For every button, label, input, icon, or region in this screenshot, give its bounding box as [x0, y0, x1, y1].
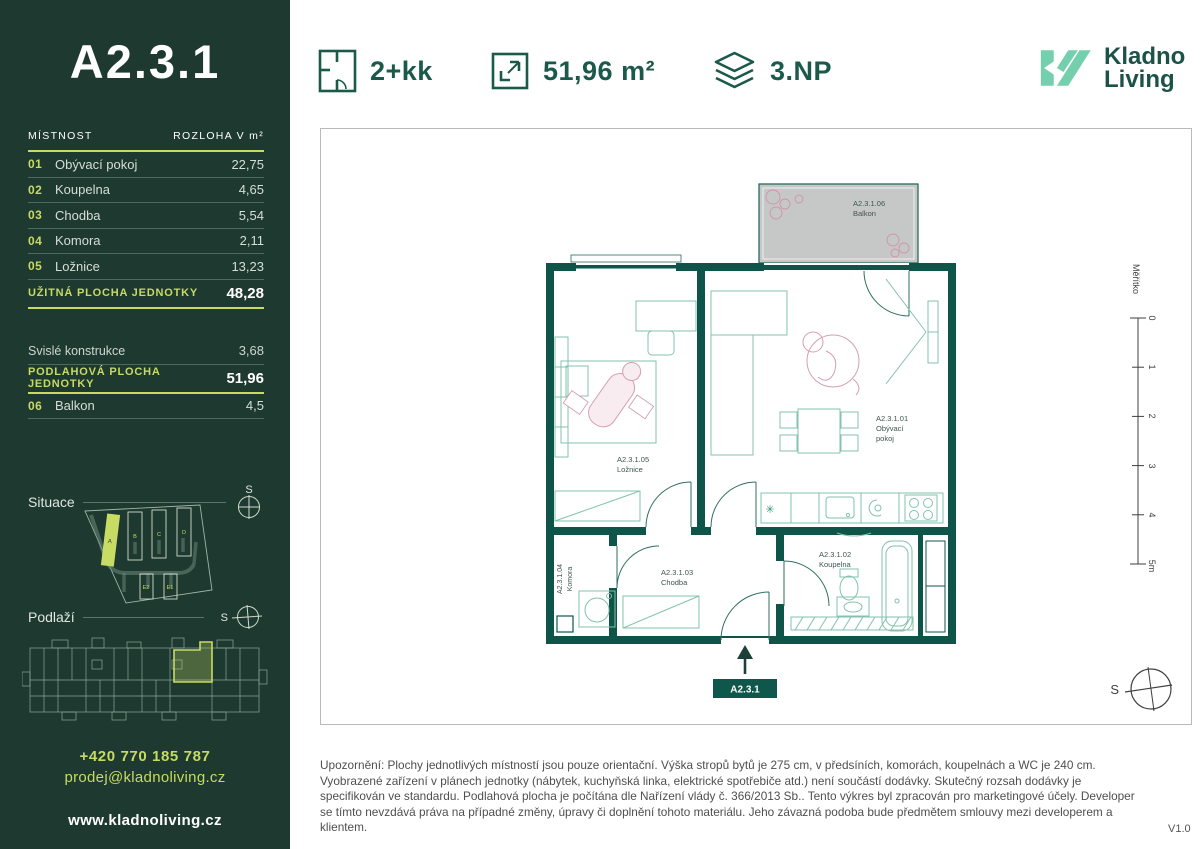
usable-area-row: UŽITNÁ PLOCHA JEDNOTKY 48,28	[28, 280, 264, 309]
brand-line1: Kladno	[1104, 45, 1185, 68]
room-number: 06	[28, 399, 55, 413]
unit-id-title: A2.3.1	[0, 34, 290, 89]
svg-text:Chodba: Chodba	[661, 578, 688, 587]
svg-text:E1: E1	[167, 585, 174, 591]
svg-text:pokoj: pokoj	[876, 434, 894, 443]
svg-text:D: D	[182, 530, 186, 536]
balcony-row: 06 Balkon 4,5	[28, 394, 264, 420]
room-area: 13,23	[231, 259, 264, 274]
area-icon	[490, 51, 530, 91]
room-name: Komora	[55, 233, 101, 248]
floorplan-canvas: Měřítko 0 1 2 3 4 5m S A2.3.1.06 Balkon	[320, 128, 1192, 725]
svg-text:Ložnice: Ložnice	[617, 465, 643, 474]
room-number: 01	[28, 157, 55, 171]
feature-area: 51,96 m²	[490, 46, 655, 96]
room-name: Obývací pokoj	[55, 157, 137, 172]
floor-area-label: PODLAHOVÁ PLOCHA JEDNOTKY	[28, 366, 226, 390]
svg-text:S: S	[245, 484, 252, 496]
feature-layout: 2+kk	[318, 46, 433, 96]
floorplan-drawing: Měřítko 0 1 2 3 4 5m S A2.3.1.06 Balkon	[321, 129, 1191, 724]
room-area: 4,5	[246, 398, 264, 413]
feature-floor: 3.NP	[712, 46, 832, 96]
brand-line2: Living	[1104, 68, 1185, 91]
usable-area-label: UŽITNÁ PLOCHA JEDNOTKY	[28, 287, 198, 299]
room-number: 03	[28, 208, 55, 222]
col-room-header: MÍSTNOST	[28, 130, 93, 142]
version-label: V1.0	[1168, 823, 1191, 835]
svg-text:A2.3.1.03: A2.3.1.03	[661, 568, 693, 577]
divider-line	[83, 617, 204, 618]
vertical-structures-label: Svislé konstrukce	[28, 344, 125, 358]
svg-text:A2.3.1.01: A2.3.1.01	[876, 414, 908, 423]
kitchen-counter	[761, 493, 943, 523]
svg-text:A: A	[107, 539, 112, 545]
phone-number: +420 770 185 787	[0, 748, 290, 765]
room-name: Ložnice	[55, 259, 100, 274]
sidebar: A2.3.1 MÍSTNOST ROZLOHA V m² 01 Obývací …	[0, 0, 290, 849]
svg-text:B: B	[133, 534, 137, 540]
brand-logo: Kladno Living	[1036, 44, 1185, 92]
bathroom-fixtures	[791, 533, 913, 631]
floor-area-row: PODLAHOVÁ PLOCHA JEDNOTKY 51,96	[28, 365, 264, 394]
svg-text:2: 2	[1147, 413, 1157, 418]
contact-block: +420 770 185 787 prodej@kladnoliving.cz …	[0, 748, 290, 829]
room-area: 5,54	[239, 208, 264, 223]
usable-area-value: 48,28	[226, 285, 264, 302]
site-plan-map: A B C D E2 E1	[28, 502, 264, 606]
svg-text:3: 3	[1147, 463, 1157, 468]
svg-text:A2.3.1.06: A2.3.1.06	[853, 199, 885, 208]
svg-text:A2.3.1.04: A2.3.1.04	[557, 564, 564, 594]
table-row: 05 Ložnice 13,23	[28, 254, 264, 280]
room-name: Balkon	[55, 398, 95, 413]
room-area: 22,75	[231, 157, 264, 172]
table-row: 02 Koupelna 4,65	[28, 178, 264, 204]
livingroom-furniture	[711, 279, 938, 455]
entrance-arrow	[737, 645, 753, 674]
svg-text:Obývací: Obývací	[876, 424, 904, 433]
floor-overview-plan	[22, 620, 268, 732]
room-area: 2,11	[240, 233, 264, 248]
dog-illustration	[803, 332, 859, 395]
vertical-structures-row: Svislé konstrukce 3,68	[28, 338, 264, 365]
table-header: MÍSTNOST ROZLOHA V m²	[28, 130, 264, 152]
svg-text:Komora: Komora	[567, 567, 574, 592]
unit-badge: A2.3.1	[713, 679, 777, 698]
svg-text:Měřítko: Měřítko	[1131, 264, 1141, 294]
svg-text:E2: E2	[143, 585, 150, 591]
fridge-symbol: ✳	[765, 504, 774, 516]
col-area-header: ROZLOHA V m²	[173, 130, 264, 142]
website-url: www.kladnoliving.cz	[0, 812, 290, 829]
svg-text:C: C	[157, 532, 161, 538]
svg-text:A2.3.1.05: A2.3.1.05	[617, 455, 649, 464]
kladno-living-logo-mark	[1036, 44, 1094, 92]
area-value: 51,96 m²	[543, 56, 655, 87]
svg-text:4: 4	[1147, 512, 1157, 517]
room-number: 05	[28, 259, 55, 273]
svg-text:Balkon: Balkon	[853, 209, 876, 218]
svg-text:A2.3.1.02: A2.3.1.02	[819, 550, 851, 559]
layout-value: 2+kk	[370, 56, 433, 87]
svg-text:0: 0	[1147, 315, 1157, 320]
floor-icon	[712, 50, 757, 92]
scale-labels: Měřítko 0 1 2 3 4 5m	[1131, 264, 1157, 572]
svg-text:Koupelna: Koupelna	[819, 560, 852, 569]
svg-text:1: 1	[1147, 364, 1157, 369]
table-row: 04 Komora 2,11	[28, 229, 264, 255]
svg-text:5m: 5m	[1147, 560, 1157, 573]
room-number: 02	[28, 183, 55, 197]
room-area-table: MÍSTNOST ROZLOHA V m² 01 Obývací pokoj 2…	[28, 130, 264, 419]
table-row: 01 Obývací pokoj 22,75	[28, 152, 264, 178]
vertical-structures-value: 3,68	[239, 343, 264, 358]
room-name: Koupelna	[55, 182, 110, 197]
svg-text:S: S	[1110, 682, 1119, 697]
scale-bar	[1130, 318, 1146, 564]
floorplan-icon	[318, 49, 357, 93]
room-name: Chodba	[55, 208, 101, 223]
brand-name: Kladno Living	[1104, 45, 1185, 91]
room-area: 4,65	[239, 182, 264, 197]
svg-text:A2.3.1: A2.3.1	[730, 685, 760, 696]
floor-value: 3.NP	[770, 56, 832, 87]
room-number: 04	[28, 234, 55, 248]
compass-icon: S	[1110, 667, 1172, 711]
legal-disclaimer: Upozornění: Plochy jednotlivých místnost…	[320, 758, 1148, 836]
floor-area-value: 51,96	[226, 370, 264, 387]
balcony: A2.3.1.06 Balkon	[759, 184, 918, 263]
email-address: prodej@kladnoliving.cz	[0, 769, 290, 786]
person-illustration	[563, 342, 668, 446]
table-row: 03 Chodba 5,54	[28, 203, 264, 229]
hallway-furniture	[579, 591, 699, 628]
